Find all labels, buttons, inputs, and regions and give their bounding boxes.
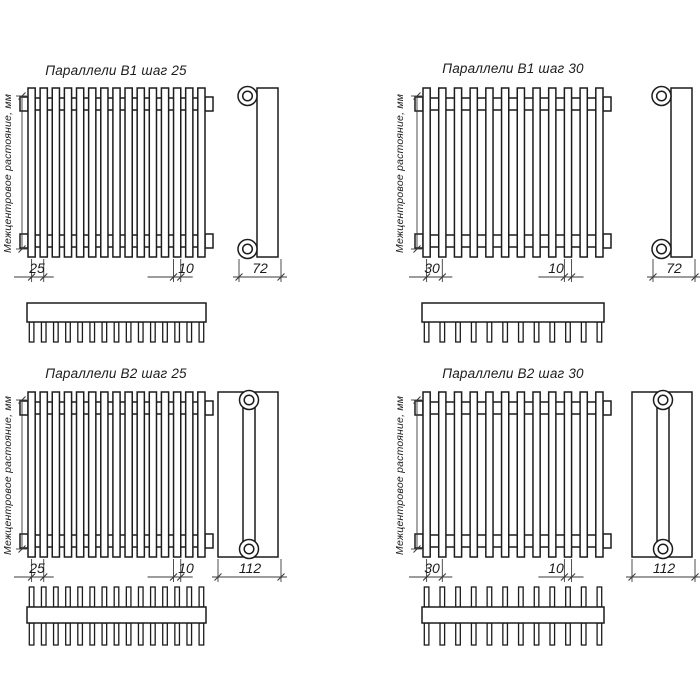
tube-dimension-label: 10 <box>164 560 208 576</box>
panel-title: Параллели В2 шаг 25 <box>21 366 211 384</box>
step-dimension-label: 30 <box>410 560 454 576</box>
center-distance-axis-label: Межцентровое растояние, мм <box>2 392 17 558</box>
depth-dimension-label: 72 <box>238 260 282 276</box>
technical-drawing-sheet: Параллели В1 шаг 25 Межцентровое растоян… <box>0 0 700 700</box>
panel-title: Параллели В2 шаг 30 <box>418 366 608 384</box>
center-distance-axis-label: Межцентровое растояние, мм <box>394 392 409 558</box>
panel-title: Параллели В1 шаг 25 <box>21 63 211 81</box>
center-distance-axis-label: Межцентровое растояние, мм <box>2 88 17 258</box>
step-dimension-label: 25 <box>15 560 59 576</box>
radiator-line-art <box>0 0 700 700</box>
depth-dimension-label: 72 <box>652 260 696 276</box>
step-dimension-label: 25 <box>15 260 59 276</box>
tube-dimension-label: 10 <box>164 260 208 276</box>
center-distance-axis-label: Межцентровое растояние, мм <box>394 88 409 258</box>
panel-title: Параллели В1 шаг 30 <box>418 61 608 79</box>
depth-dimension-label: 112 <box>642 560 686 576</box>
tube-dimension-label: 10 <box>534 260 578 276</box>
tube-dimension-label: 10 <box>534 560 578 576</box>
step-dimension-label: 30 <box>410 260 454 276</box>
depth-dimension-label: 112 <box>228 560 272 576</box>
